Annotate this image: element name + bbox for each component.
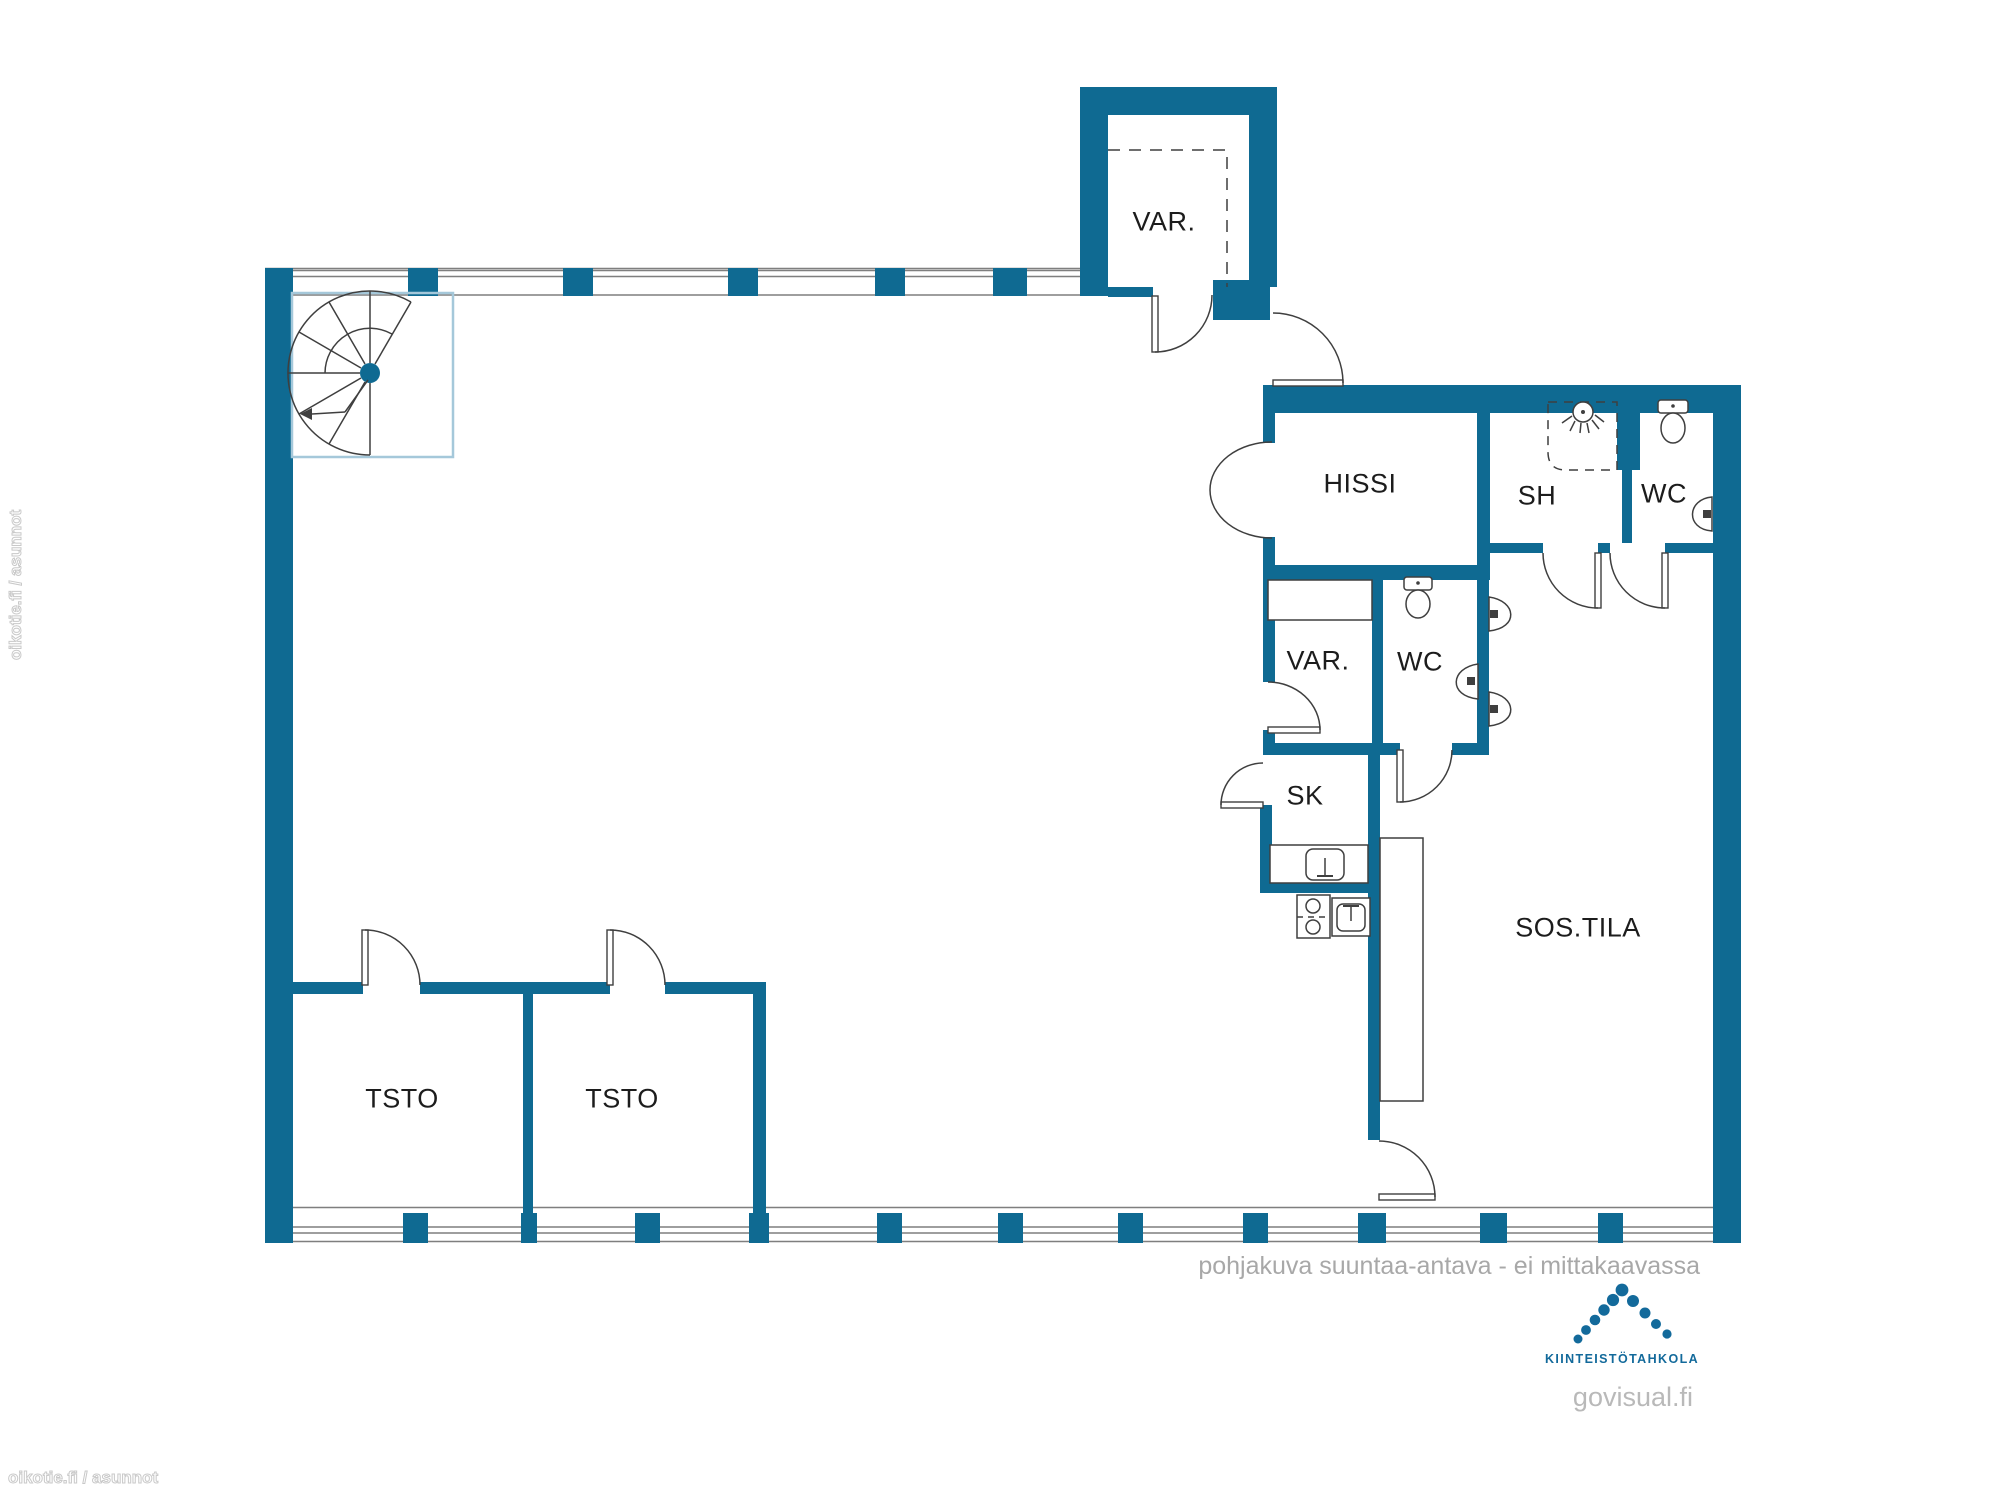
room-label-wc-top: WC: [1641, 479, 1687, 510]
watermark-bottom-left: oikotie.fi / asunnot: [8, 1468, 158, 1488]
counter: [1380, 838, 1423, 1101]
wall-sink-icon: [1456, 664, 1478, 699]
room-label-sk: SK: [1286, 781, 1323, 812]
stove-icon: [1297, 895, 1330, 938]
wall-sink-icon: [1489, 692, 1511, 726]
room-label-sos-tila: SOS.TILA: [1515, 913, 1641, 944]
disclaimer-text: pohjakuva suuntaa-antava - ei mittakaava…: [1198, 1252, 1700, 1281]
spiral-staircase: [288, 291, 453, 457]
room-label-tsto-1: TSTO: [365, 1084, 439, 1115]
wall-sink-icon: [1692, 497, 1712, 531]
room-label-var-mid: VAR.: [1286, 646, 1349, 677]
floor-plan-drawing: [0, 0, 2000, 1500]
toilet-icon: [1404, 577, 1432, 618]
floor-plan-page: VAR. HISSI SH WC VAR. WC SK SOS.TILA TST…: [0, 0, 2000, 1500]
site-credit: govisual.fi: [1573, 1382, 1693, 1413]
window-glass-top: [265, 269, 1080, 296]
toilet-icon: [1658, 400, 1688, 443]
wall-sink-icon: [1489, 597, 1511, 631]
watermark-left-edge: oikotie.fi / asunnot: [6, 510, 26, 660]
room-label-wc-mid: WC: [1397, 647, 1443, 678]
kitchen-sink-icon: [1332, 898, 1370, 936]
shelf: [1268, 580, 1372, 620]
kiinteistotahkola-logo: [1574, 1284, 1672, 1344]
cleaning-closet-sink-icon: [1270, 845, 1368, 883]
walls: [265, 87, 1741, 1243]
room-label-var-top: VAR.: [1132, 207, 1195, 238]
room-label-tsto-2: TSTO: [585, 1084, 659, 1115]
brand-name: KIINTEISTÖTAHKOLA: [1545, 1352, 1699, 1366]
room-label-sh: SH: [1518, 481, 1557, 512]
room-label-hissi: HISSI: [1323, 469, 1396, 500]
